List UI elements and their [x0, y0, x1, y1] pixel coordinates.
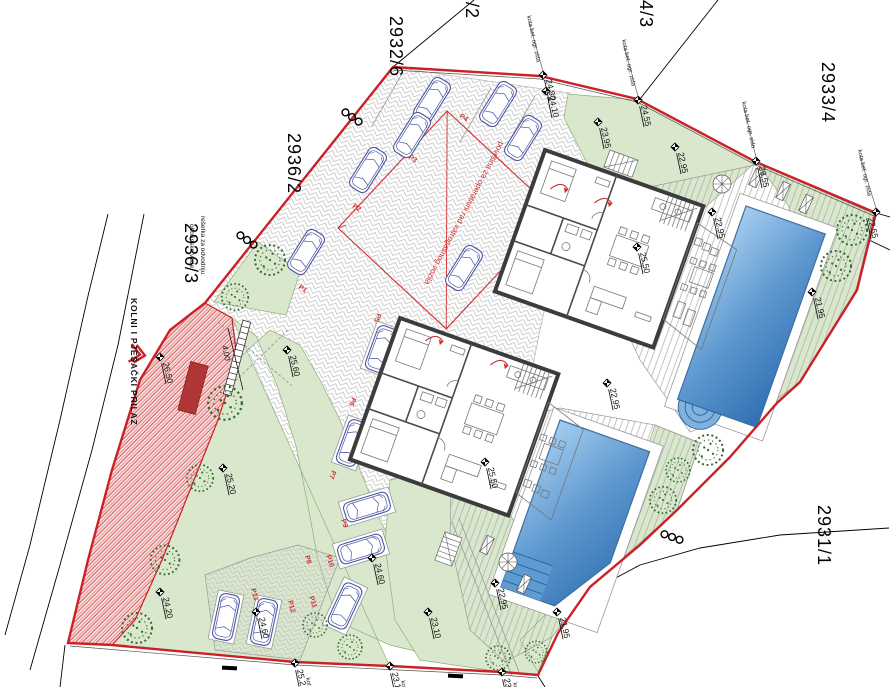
wall-note-fragment: kot	[511, 682, 519, 687]
fence-icon	[660, 530, 684, 544]
drain-label: oborinske vode	[188, 224, 195, 268]
parcel-label: 2933/4	[818, 62, 838, 123]
drain-label: rešetka za odvodnju	[199, 216, 206, 275]
parcel-label: 2931/1	[814, 505, 834, 566]
parcel-label: /2	[462, 2, 482, 19]
wall-note-label: kota bet. ogr. zida	[525, 15, 541, 63]
site-plan: /2 2932/6 2936/2 2936/3 4/3 2933/4 2931/…	[0, 0, 890, 687]
wall-note-fragment: kot	[399, 680, 407, 687]
parcel-label: 4/3	[636, 0, 656, 28]
wall-note-label: kota bet. ogr. zida	[856, 149, 872, 197]
parcel-label: 2932/6	[386, 16, 406, 77]
wall-note-label: kota bet. ogr. zida	[620, 39, 636, 87]
wall-note-label: kota bet. ogr. zida	[740, 101, 756, 149]
parcel-label: 2936/2	[284, 133, 304, 194]
umbrella-icon	[499, 553, 517, 571]
access-road-label: KOLNI I PJEŠAČKI PRILAZ	[129, 298, 140, 426]
elevation-label: 22.95	[608, 387, 622, 410]
umbrella-icon	[713, 175, 731, 193]
